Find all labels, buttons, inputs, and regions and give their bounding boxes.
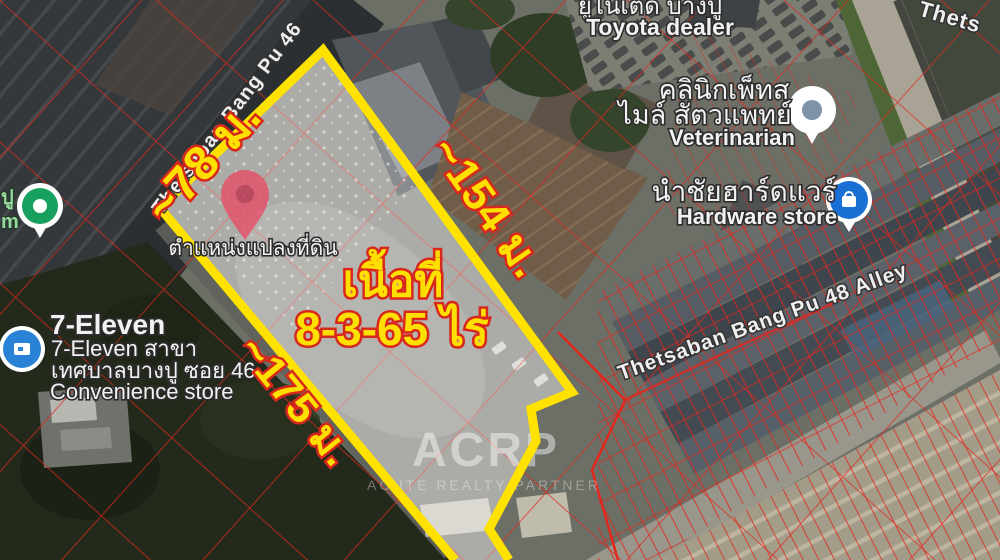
satellite-map-image: ACRP ACUTE REALTY PARTNER Thetsaban Bang… — [0, 0, 1000, 560]
map-canvas: ACRP ACUTE REALTY PARTNER Thetsaban Bang… — [0, 0, 1000, 560]
toyota-en-label: Toyota dealer — [586, 14, 734, 40]
seven-eleven-type-label: Convenience store — [50, 379, 233, 404]
hardware-en-label: Hardware store — [677, 204, 837, 229]
left-edge-partial-label-2: m — [1, 211, 19, 233]
pin-caption-label: ตำแหน่งแปลงที่ดิน — [168, 233, 337, 260]
vet-en-label: Veterinarian — [669, 125, 795, 150]
area-title-label: เนื้อที่ — [343, 248, 444, 306]
hardware-thai-label: นำชัยฮาร์ดแวร์ — [651, 176, 836, 207]
area-value-label: 8-3-65 ไร่ — [295, 303, 489, 355]
left-edge-partial-label-1: ปู — [1, 187, 14, 211]
poi-seven-eleven-icon — [0, 326, 45, 372]
